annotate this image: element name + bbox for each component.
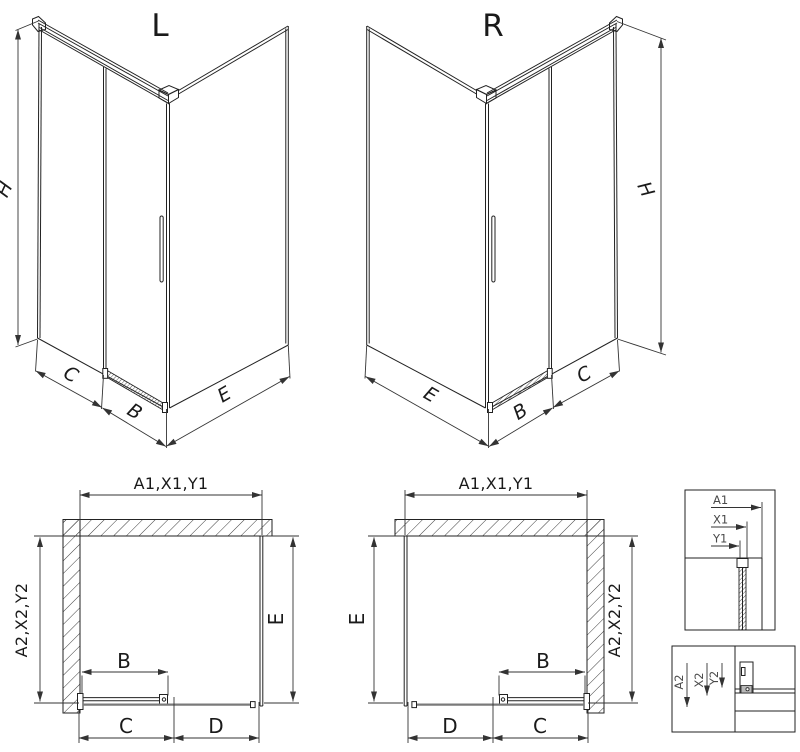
dim-label-y1: Y1 <box>712 532 727 546</box>
top-rail <box>33 17 169 104</box>
dimension-b: B <box>499 649 585 696</box>
roller-block <box>160 695 168 705</box>
detail-dim-x2: X2 <box>692 663 707 696</box>
dimension-h: H <box>617 22 666 356</box>
door-handle <box>160 216 163 282</box>
dim-label-a2x2y2: A2,X2,Y2 <box>12 583 31 658</box>
variant-label-right: R <box>482 8 504 44</box>
floor-rail <box>412 702 584 708</box>
dim-label-a1x1y1: A1,X1,Y1 <box>134 474 209 493</box>
technical-drawing-sheet: L <box>0 0 800 752</box>
dim-label-c: C <box>119 714 133 738</box>
detail-view-top: A1 X1 Y1 <box>685 490 775 630</box>
drawing-canvas: L <box>0 0 800 752</box>
dimension-e: E <box>345 536 403 703</box>
sliding-door-leaf <box>83 695 168 705</box>
dim-label-b: B <box>123 399 146 425</box>
dim-label-e: E <box>345 613 369 626</box>
door-division-edge <box>104 67 107 375</box>
dim-label-d: D <box>208 714 223 738</box>
dim-label-b: B <box>509 399 532 425</box>
dim-label-e: E <box>214 382 235 407</box>
dim-label-c: C <box>60 362 83 388</box>
dim-label-c: C <box>573 362 596 388</box>
roller-wheel <box>746 688 749 691</box>
profile-cap <box>737 559 748 568</box>
dimension-e: E <box>264 536 299 703</box>
door-division-edge <box>549 67 552 375</box>
door-handle <box>492 216 495 282</box>
wall-top-hatch <box>395 520 604 537</box>
plan-view-left: A1,X1,Y1 A2,X2,Y2 E B <box>12 474 299 743</box>
dim-label-a1x1y1: A1,X1,Y1 <box>459 474 534 493</box>
dimension-e: E <box>167 346 290 447</box>
dim-label-x1: X1 <box>713 513 728 527</box>
dimension-h: H <box>0 21 38 347</box>
corner-bracket <box>159 86 179 104</box>
dim-label-b: B <box>536 649 550 673</box>
wall-profile <box>78 694 84 710</box>
dim-label-x2: X2 <box>692 672 706 687</box>
right-face-glass <box>489 24 618 409</box>
wall-profile <box>584 694 590 710</box>
dimension-b: B <box>82 649 168 696</box>
top-rail <box>487 17 623 104</box>
roller-block <box>500 695 508 705</box>
corner-bracket <box>477 86 497 104</box>
iso-view-right: R <box>365 8 666 448</box>
variant-label-left: L <box>151 8 169 44</box>
dim-label-b: B <box>117 649 131 673</box>
dim-label-c: C <box>533 714 547 738</box>
dim-label-y2: Y2 <box>707 671 721 686</box>
dim-label-d: D <box>442 714 457 738</box>
dim-label-h: H <box>632 178 658 200</box>
side-glass-panel <box>260 536 263 706</box>
detail-view-bottom: A2 X2 Y2 <box>672 646 795 732</box>
detail-dim-a2: A2 <box>672 663 687 707</box>
iso-view-left: L <box>0 8 290 448</box>
side-glass-panel <box>404 536 407 706</box>
floor-rail <box>83 702 255 708</box>
detail-dim-y2: Y2 <box>707 663 722 688</box>
wall-top-hatch <box>63 520 272 537</box>
left-face-glass <box>38 24 167 409</box>
plan-view-right: A1,X1,Y1 E A2,X2,Y2 B <box>345 474 638 743</box>
corner-edge <box>486 104 489 409</box>
dim-label-h: H <box>0 178 18 200</box>
dim-label-e: E <box>264 613 288 626</box>
wall-side-hatch <box>63 520 80 714</box>
dimension-c: C <box>552 340 620 409</box>
detail-dim-y1: Y1 <box>711 532 740 559</box>
wall-side-hatch <box>587 520 604 714</box>
dimension-e: E <box>365 346 488 447</box>
dim-label-e: E <box>420 382 441 407</box>
side-panel-glass <box>367 26 486 408</box>
dim-label-a2x2y2: A2,X2,Y2 <box>605 583 624 658</box>
sliding-door-leaf <box>500 695 585 705</box>
corner-edge <box>167 104 170 409</box>
dimension-c: C <box>36 340 104 409</box>
side-panel-glass <box>170 26 289 408</box>
dim-label-a1: A1 <box>713 493 728 507</box>
dim-label-a2: A2 <box>672 674 686 689</box>
profile-notch <box>742 668 746 676</box>
